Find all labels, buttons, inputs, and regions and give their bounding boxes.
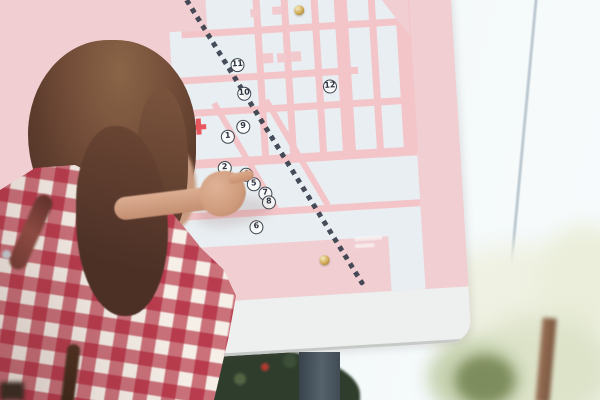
pin-icon xyxy=(319,255,330,266)
pin-icon xyxy=(294,5,305,16)
map-sign-board: 123456789101112 xyxy=(0,0,472,374)
photo-scene: 123456789101112 xyxy=(0,0,600,400)
sign-post xyxy=(299,352,340,400)
tree-bokeh xyxy=(455,355,515,400)
